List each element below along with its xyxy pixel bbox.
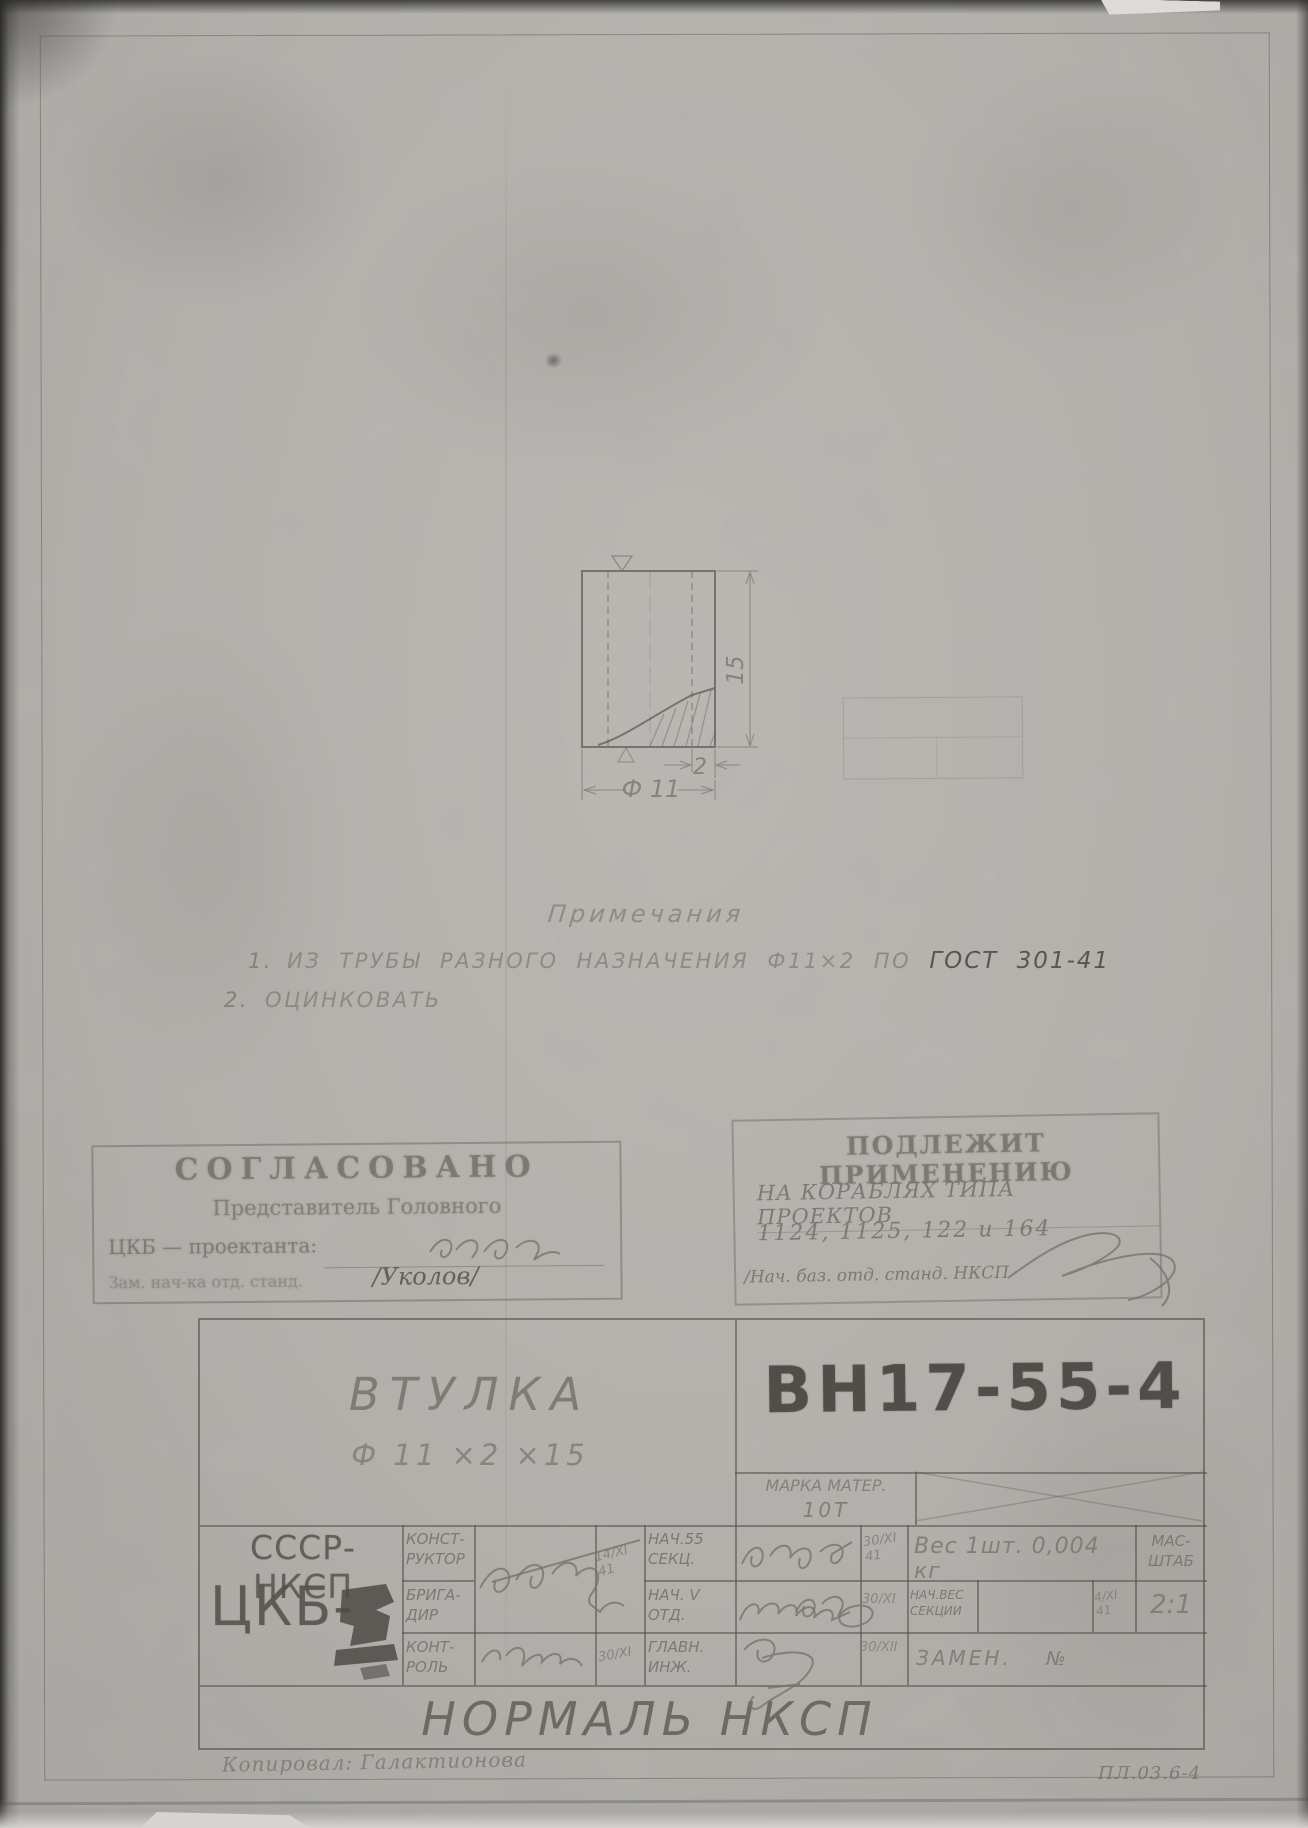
notes-heading: Примечания xyxy=(547,900,746,928)
title-block-line xyxy=(915,1472,917,1525)
dim-height-label: 15 xyxy=(723,655,749,684)
stamp-approved-org-label: ЦКБ — проектанта: xyxy=(108,1233,317,1259)
date-signed: 4/XI 41 xyxy=(1093,1585,1135,1618)
part-name: ВТУЛКА xyxy=(260,1368,680,1421)
faint-stamp-line xyxy=(936,737,937,778)
title-block-line xyxy=(735,1472,1207,1474)
scale-label: МАС- ШТАБ xyxy=(1137,1532,1205,1571)
weight-per-piece: Вес 1шт. 0,004 кг xyxy=(914,1534,1132,1584)
document-number: ВН17-55-4 xyxy=(755,1350,1196,1429)
stamp-approved: СОГЛАСОВАНО Представитель Головного ЦКБ … xyxy=(91,1141,622,1305)
note-number: 1. xyxy=(248,949,273,973)
note-number: 2. xyxy=(224,988,249,1012)
date-signed: 30/XII xyxy=(860,1640,908,1655)
role-constructor: КОНСТ- РУКТОР xyxy=(406,1530,472,1569)
footer-doc-code: ПЛ.03.6-4 xyxy=(1098,1763,1201,1784)
scale-value: 2:1 xyxy=(1137,1590,1205,1620)
part-drawing: 15 2 Ф 11 xyxy=(540,535,790,825)
normal-title: НОРМАЛЬ НКСП xyxy=(200,1692,1207,1746)
role-glavinzh: ГЛАВН. ИНЖ. xyxy=(648,1638,734,1677)
scan-edge-right xyxy=(1296,0,1308,1828)
title-block-line xyxy=(1092,1580,1094,1632)
replace-number: № xyxy=(1046,1648,1066,1670)
stamp-apply: ПОДЛЕЖИТ ПРИМЕНЕНИЮ НА КОРАБЛЯХ ТИПА ПРО… xyxy=(731,1112,1162,1305)
material-value: 10Т xyxy=(740,1498,912,1522)
material-label: МАРКА МАТЕР. xyxy=(740,1476,912,1495)
role-nach55: НАЧ.55 СЕКЦ. xyxy=(648,1530,734,1569)
org-bureau: ЦКБ- xyxy=(210,1575,340,1638)
faint-stamp-line xyxy=(844,736,1022,738)
stamp-approved-approver: /Уколов/ xyxy=(372,1262,478,1291)
stamp-apply-line2: 1124, 1125, 122 и 164 xyxy=(757,1216,1051,1246)
title-block-line xyxy=(402,1580,474,1582)
date-signed: 14/XI 41 xyxy=(593,1538,651,1580)
date-signed: 30/XI xyxy=(862,1592,908,1607)
title-block-line xyxy=(200,1685,1207,1687)
title-block: ВТУЛКА Ф 11 ×2 ×15 ВН17-55-4 МАРКА МАТЕР… xyxy=(198,1318,1205,1750)
stamp-approved-title: СОГЛАСОВАНО xyxy=(93,1149,619,1189)
note-line-1: 1.ИЗ ТРУБЫ РАЗНОГО НАЗНАЧЕНИЯ Ф11×2 ПО Г… xyxy=(248,948,1110,974)
stamp-apply-line3: /Нач. баз. отд. станд. НКСП xyxy=(744,1263,1009,1288)
section-hatching xyxy=(650,690,715,746)
role-control: КОНТ- РОЛЬ xyxy=(406,1638,472,1677)
title-block-line xyxy=(735,1320,737,1525)
stamp-approved-subtitle: Представитель Головного xyxy=(94,1193,620,1222)
role-nachV: НАЧ. V ОТД. xyxy=(648,1586,734,1625)
date-signed: 30/XI xyxy=(597,1642,649,1665)
note-text: ИЗ ТРУБЫ РАЗНОГО НАЗНАЧЕНИЯ Ф11×2 ПО xyxy=(287,949,911,973)
title-block-line xyxy=(977,1580,979,1632)
scanned-drawing-sheet: 15 2 Ф 11 Примечания 1.ИЗ ТРУБЫ РАЗНОГО … xyxy=(0,0,1308,1828)
title-block-line xyxy=(735,1525,737,1685)
note-gost-ref: ГОСТ 301-41 xyxy=(929,948,1110,974)
note-line-2: 2.ОЦИНКОВАТЬ xyxy=(224,988,442,1012)
replace-label: ЗАМЕН. xyxy=(916,1646,1012,1670)
title-block-line xyxy=(200,1525,1207,1527)
title-block-line xyxy=(402,1525,404,1685)
dim-diameter-label: Ф 11 xyxy=(622,775,681,803)
title-block-line xyxy=(474,1525,476,1685)
role-brigadier: БРИГА- ДИР xyxy=(406,1586,472,1625)
part-size: Ф 11 ×2 ×15 xyxy=(260,1438,680,1472)
section-weight-label: НАЧ.ВЕС СЕКЦИИ xyxy=(910,1588,976,1619)
dimension-height: 15 xyxy=(717,571,758,747)
stamp-approved-approver-label: Зам. нач-ка отд. станд. xyxy=(108,1271,303,1292)
faint-stamp-outline xyxy=(843,696,1024,779)
surface-finish-icon xyxy=(618,748,634,762)
note-text: ОЦИНКОВАТЬ xyxy=(265,988,442,1012)
surface-finish-icon xyxy=(612,556,632,571)
scan-edge-left xyxy=(0,0,20,1828)
dim-wall-label: 2 xyxy=(693,755,707,780)
date-signed: 30/XI 41 xyxy=(862,1529,910,1565)
title-block-line xyxy=(402,1632,1207,1634)
section-break-curve xyxy=(598,688,715,745)
